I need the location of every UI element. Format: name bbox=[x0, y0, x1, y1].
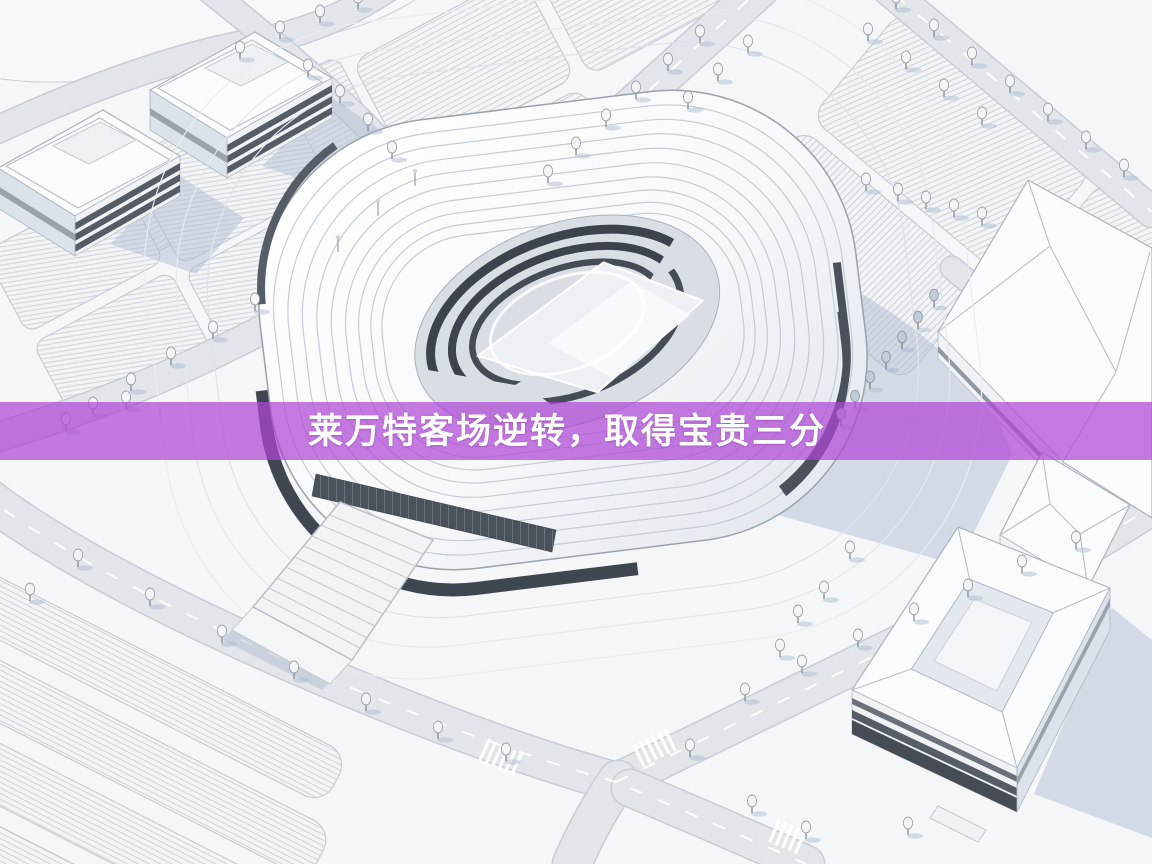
headline-banner: 莱万特客场逆转，取得宝贵三分 bbox=[0, 402, 1152, 460]
headline-text: 莱万特客场逆转，取得宝贵三分 bbox=[308, 414, 826, 449]
news-hero-image: 莱万特客场逆转，取得宝贵三分 bbox=[0, 0, 1152, 864]
